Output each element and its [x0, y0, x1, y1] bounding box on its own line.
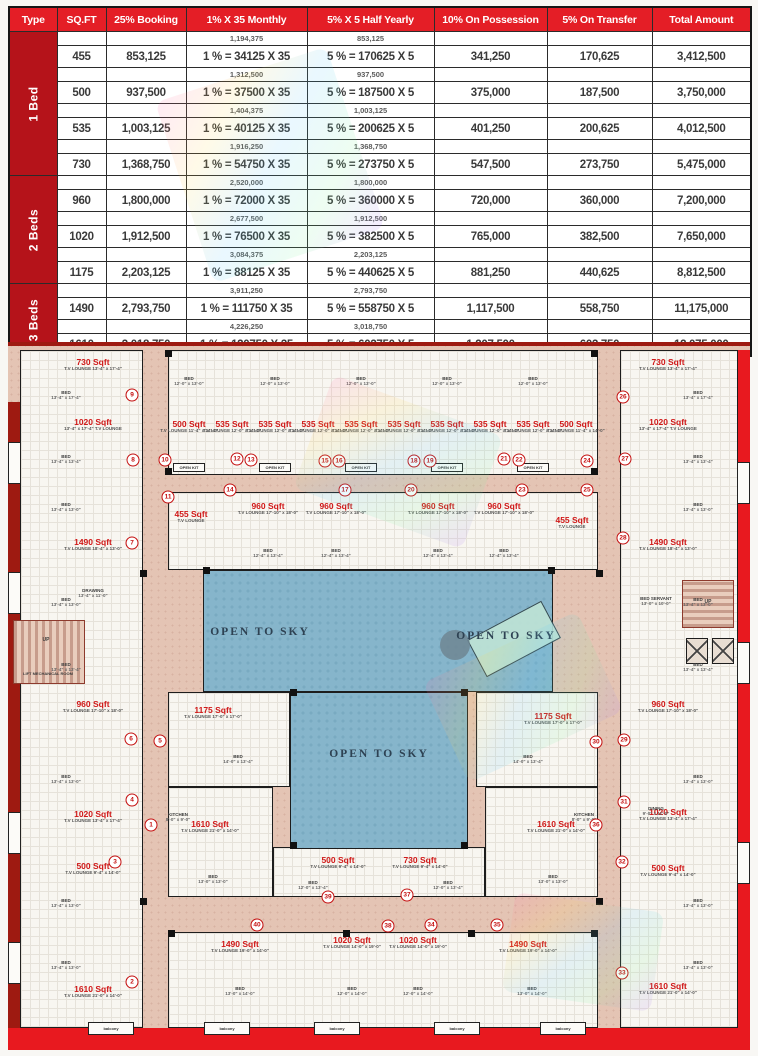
room-label: BED13'-0" x 14'-0" [225, 986, 254, 996]
table-cell: 1,003,125 [106, 118, 186, 140]
table-row: 1,312,500937,500 [9, 68, 751, 82]
unit-lounge-dims: T.V LOUNGE 21'-0" x 14'-0" [64, 994, 122, 999]
unit-number-badge: 30 [590, 736, 603, 749]
open-to-sky-label: OPEN TO SKY [210, 626, 310, 638]
table-cell: 1 % = 37500 X 35 [186, 82, 307, 104]
table-cell: 720,000 [434, 190, 547, 212]
room-label: BED12'-0" x 13'-4" [298, 880, 327, 890]
room-label: BED13'-4" x 17'-4" [683, 390, 712, 400]
table-cell: 1175 [57, 262, 106, 284]
unit-number-badge: 7 [126, 537, 139, 550]
room-dims: 12'-0" x 13'-0" [260, 381, 289, 386]
room-dims: 13'-4" x 13'-4" [51, 667, 80, 672]
room-label: BED13'-0" x 13'-0" [538, 874, 567, 884]
unit-number-badge: 9 [126, 389, 139, 402]
table-subcell: 1,312,500 [186, 68, 307, 82]
room-label: BED12'-0" x 14'-0" [337, 986, 366, 996]
table-cell: 170,625 [547, 46, 652, 68]
table-subcell [434, 140, 547, 154]
unit-number-badge: 4 [126, 794, 139, 807]
table-subcell [434, 212, 547, 226]
lift-mechanical-room-label: LIFT MECHANICAL ROOM [16, 672, 80, 677]
table-cell: 360,000 [547, 190, 652, 212]
open-to-sky-courtyard [290, 692, 468, 849]
unit-lounge-dims: T.V LOUNGE 9'-4" x 14'-0" [392, 865, 447, 870]
unit-lounge-dims: T.V LOUNGE 13'-4" x 17'-4" [639, 817, 697, 822]
balcony [8, 942, 21, 984]
unit-area-label: 455 SqftT.V LOUNGE [555, 516, 588, 530]
unit-number-badge: 14 [224, 484, 237, 497]
unit-area-label: 960 SqftT.V LOUNGE 17'-10" x 18'-0" [63, 700, 123, 714]
unit-number-badge: 28 [617, 532, 630, 545]
open-to-sky-label: OPEN TO SKY [329, 748, 429, 760]
up-label: UP [43, 638, 50, 644]
unit-type-label: 2 Beds [26, 206, 40, 253]
table-subcell: 2,793,750 [307, 284, 434, 298]
table-cell: 937,500 [106, 82, 186, 104]
unit-lounge-dims: T.V LOUNGE 9'-4" x 14'-0" [640, 873, 695, 878]
room-label: BED12'-0" x 13'-0" [518, 376, 547, 386]
open-kit-label: OPEN KIT [345, 463, 377, 472]
unit-area-label: 1490 SqftT.V LOUNGE 19'-0" x 14'-0" [211, 940, 269, 954]
column-marker [140, 898, 147, 905]
table-cell: 5,475,000 [652, 154, 751, 176]
table-row: 9601,800,0001 % = 72000 X 355 % = 360000… [9, 190, 751, 212]
room-label: BED13'-4" x 13'-4" [51, 454, 80, 464]
table-subcell [57, 176, 106, 190]
table-subcell [57, 32, 106, 46]
room-dims: 8'-0" x 9'-0" [166, 817, 190, 822]
table-subcell [434, 320, 547, 334]
table-subcell: 1,003,125 [307, 104, 434, 118]
table-subcell [57, 68, 106, 82]
table-row: 1 Bed1,194,375853,125 [9, 32, 751, 46]
unit-number-badge: 13 [245, 454, 258, 467]
unit-lounge-dims: T.V LOUNGE 17'-10" x 18'-0" [63, 709, 123, 714]
unit-lounge-dims: T.V LOUNGE 13'-4" x 17'-4" [639, 367, 697, 372]
column-marker [290, 689, 297, 696]
room-dims: 13'-4" x 13'-0" [51, 965, 80, 970]
unit-number-badge: 16 [333, 455, 346, 468]
unit-lounge-dims: T.V LOUNGE 9'-4" x 14'-0" [65, 871, 120, 876]
unit-area-label: 1175 SqftT.V LOUNGE 17'-0" x 17'-0" [184, 706, 242, 720]
unit-lounge-dims: T.V LOUNGE 21'-0" x 14'-0" [639, 991, 697, 996]
unit-lounge-dims: T.V LOUNGE 21'-0" x 14'-0" [181, 829, 239, 834]
unit-lounge-dims: T.V LOUNGE 18'-4" x 13'-0" [639, 547, 697, 552]
unit-number-badge: 29 [618, 734, 631, 747]
room-dims: 12'-0" x 13'-4" [298, 885, 327, 890]
unit-area-label: 500 SqftT.V LOUNGE 9'-4" x 14'-0" [310, 856, 365, 870]
table-subcell [434, 284, 547, 298]
table-subcell [547, 176, 652, 190]
unit-number-badge: 27 [619, 453, 632, 466]
table-cell: 765,000 [434, 226, 547, 248]
balcony: balcony [204, 1022, 250, 1035]
table-cell: 853,125 [106, 46, 186, 68]
table-subcell [106, 248, 186, 262]
table-row: 1,404,3751,003,125 [9, 104, 751, 118]
unit-number-badge: 39 [322, 891, 335, 904]
table-row: 2 Beds2,520,0001,800,000 [9, 176, 751, 190]
table-cell: 4,012,500 [652, 118, 751, 140]
room-label: BED13'-4" x 13'-0" [683, 597, 712, 607]
unit-lounge-dims: 13'-4" x 17'-4" T.V LOUNGE [639, 427, 697, 432]
room-label: BED13'-4" x 13'-0" [51, 502, 80, 512]
unit-area-label: 960 SqftT.V LOUNGE 17'-10" x 18'-0" [408, 502, 468, 516]
unit-lounge-dims: T.V LOUNGE 17'-10" x 18'-0" [306, 511, 366, 516]
room-label: BED12'-0" x 13'-0" [174, 376, 203, 386]
table-cell: 5 % = 273750 X 5 [307, 154, 434, 176]
open-to-sky-label: OPEN TO SKY [456, 630, 556, 642]
unit-number-badge: 2 [126, 976, 139, 989]
room-label: BED13'-4" x 13'-0" [51, 774, 80, 784]
room-dims: 13'-4" x 17'-4" [683, 395, 712, 400]
unit-area-label: 500 SqftT.V LOUNGE 9'-4" x 14'-0" [640, 864, 695, 878]
table-header-3: 1% X 35 Monthly [186, 7, 307, 32]
table-cell: 375,000 [434, 82, 547, 104]
unit-area-label: 500 SqftT.V LOUNGE 11'-4" x 14'-0" [547, 420, 604, 434]
table-subcell: 3,911,250 [186, 284, 307, 298]
table-cell: 1490 [57, 298, 106, 320]
unit-lounge-dims: T.V LOUNGE 17'-0" x 17'-0" [184, 715, 242, 720]
unit-number-badge: 35 [491, 919, 504, 932]
table-subcell [652, 68, 751, 82]
room-dims: 13'-4" x 13'-0" [683, 602, 712, 607]
table-subcell: 3,084,375 [186, 248, 307, 262]
table-cell: 187,500 [547, 82, 652, 104]
column-marker [591, 350, 598, 357]
table-cell: 5 % = 382500 X 5 [307, 226, 434, 248]
unit-area-label: 730 SqftT.V LOUNGE 9'-4" x 14'-0" [392, 856, 447, 870]
table-cell: 1 % = 54750 X 35 [186, 154, 307, 176]
unit-lounge-dims: T.V LOUNGE 13'-4" x 17'-4" [64, 367, 122, 372]
table-cell: 3,412,500 [652, 46, 751, 68]
unit-lounge-dims: T.V LOUNGE 19'-0" x 14'-0" [499, 949, 557, 954]
unit-number-badge: 22 [513, 454, 526, 467]
unit-area-label: 1490 SqftT.V LOUNGE 18'-4" x 13'-0" [639, 538, 697, 552]
floor-plan: UPLIFT MECHANICAL ROOMUP730 SqftT.V LOUN… [8, 342, 750, 1050]
room-label: BED13'-4" x 17'-4" [51, 390, 80, 400]
room-dims: 13'-0" x 13'-0" [198, 879, 227, 884]
plan-right-band [738, 350, 750, 1050]
balcony [8, 812, 21, 854]
column-marker [591, 930, 598, 937]
table-subcell [652, 284, 751, 298]
table-cell: 881,250 [434, 262, 547, 284]
table-subcell: 2,677,500 [186, 212, 307, 226]
unit-area-label: 1020 Sqft13'-4" x 17'-4" T.V LOUNGE [64, 418, 122, 432]
table-header-0: Type [9, 7, 57, 32]
column-marker [343, 930, 350, 937]
room-dims: 12'-4" x 13'-4" [489, 553, 518, 558]
column-marker [168, 930, 175, 937]
room-dims: 9'-0" x 11'-0" [643, 811, 670, 816]
table-cell: 1020 [57, 226, 106, 248]
table-cell: 730 [57, 154, 106, 176]
unit-number-badge: 26 [617, 391, 630, 404]
column-marker [165, 468, 172, 475]
table-subcell [106, 212, 186, 226]
column-marker [165, 350, 172, 357]
room-dims: 13'-4" x 13'-4" [683, 459, 712, 464]
lift-icon [712, 638, 734, 664]
room-label: DINING9'-0" x 11'-0" [643, 806, 670, 816]
open-kit-label: OPEN KIT [259, 463, 291, 472]
unit-type-label: 3 Beds [26, 296, 40, 343]
table-subcell [652, 248, 751, 262]
table-cell: 5 % = 187500 X 5 [307, 82, 434, 104]
room-label: BED12'-4" x 13'-4" [423, 548, 452, 558]
plan-left-band [8, 402, 20, 1028]
unit-lounge-dims: T.V LOUNGE 11'-4" x 14'-0" [547, 429, 604, 434]
table-row: 2,677,5001,912,500 [9, 212, 751, 226]
table-cell: 5 % = 440625 X 5 [307, 262, 434, 284]
table-subcell [547, 284, 652, 298]
table-header-6: 5% On Transfer [547, 7, 652, 32]
room-label: BED13'-4" x 13'-0" [683, 502, 712, 512]
room-dims: 13'-4" x 13'-0" [51, 602, 80, 607]
table-cell: 5 % = 360000 X 5 [307, 190, 434, 212]
unit-number-badge: 18 [408, 455, 421, 468]
column-marker [461, 842, 468, 849]
lift-icon [686, 638, 708, 664]
unit-area-label: 960 SqftT.V LOUNGE 17'-10" x 18'-0" [306, 502, 366, 516]
balcony: balcony [540, 1022, 586, 1035]
table-row: 11752,203,1251 % = 88125 X 355 % = 44062… [9, 262, 751, 284]
unit-number-badge: 40 [251, 919, 264, 932]
unit-number-badge: 21 [498, 453, 511, 466]
table-cell: 382,500 [547, 226, 652, 248]
unit-lounge-dims: T.V LOUNGE 18'-4" x 13'-0" [64, 547, 122, 552]
table-header-1: SQ.FT [57, 7, 106, 32]
table-cell: 7,650,000 [652, 226, 751, 248]
unit-lounge-dims: T.V LOUNGE [174, 519, 207, 524]
unit-number-badge: 6 [125, 733, 138, 746]
table-header-7: Total Amount [652, 7, 751, 32]
unit-number-badge: 20 [405, 484, 418, 497]
room-dims: 12'-4" x 13'-4" [253, 553, 282, 558]
table-cell: 1 % = 111750 X 35 [186, 298, 307, 320]
table-row: 10201,912,5001 % = 76500 X 355 % = 38250… [9, 226, 751, 248]
room-label: BED13'-4" x 13'-0" [51, 898, 80, 908]
column-marker [290, 842, 297, 849]
unit-area-label: 960 SqftT.V LOUNGE 17'-10" x 18'-0" [474, 502, 534, 516]
unit-block [620, 350, 738, 1028]
room-label: BED12'-0" x 13'-0" [432, 376, 461, 386]
room-dims: 13'-0" x 14'-0" [517, 991, 546, 996]
table-cell: 547,500 [434, 154, 547, 176]
room-dims: 13'-4" x 17'-4" [51, 395, 80, 400]
room-label: BED13'-4" x 13'-0" [683, 960, 712, 970]
unit-number-badge: 25 [581, 484, 594, 497]
room-label: BED13'-4" x 13'-0" [683, 774, 712, 784]
room-label: BED SERVANT13'-0" x 10'-0" [640, 596, 672, 606]
unit-number-badge: 34 [425, 919, 438, 932]
unit-area-label: 1020 Sqft13'-4" x 17'-4" T.V LOUNGE [639, 418, 697, 432]
column-marker [591, 468, 598, 475]
table-subcell [106, 284, 186, 298]
room-dims: 13'-4" x 13'-0" [683, 903, 712, 908]
room-dims: 12'-0" x 13'-4" [433, 885, 462, 890]
table-row: 455853,1251 % = 34125 X 355 % = 170625 X… [9, 46, 751, 68]
table-subcell [106, 140, 186, 154]
table-cell: 440,625 [547, 262, 652, 284]
open-kit-label: OPEN KIT [173, 463, 205, 472]
room-dims: 12'-0" x 13'-0" [174, 381, 203, 386]
unit-area-label: 1610 SqftT.V LOUNGE 21'-0" x 14'-0" [639, 982, 697, 996]
table-cell: 500 [57, 82, 106, 104]
table-cell: 341,250 [434, 46, 547, 68]
room-dims: 13'-4" x 13'-4" [683, 667, 712, 672]
unit-number-badge: 5 [154, 735, 167, 748]
table-subcell [547, 140, 652, 154]
table-cell: 535 [57, 118, 106, 140]
room-label: KITCHEN8'-0" x 9'-0" [166, 812, 190, 822]
unit-lounge-dims: T.V LOUNGE 17'-0" x 17'-0" [524, 721, 582, 726]
unit-number-badge: 3 [109, 856, 122, 869]
room-dims: 12'-0" x 13'-0" [346, 381, 375, 386]
room-label: BED13'-4" x 13'-0" [51, 960, 80, 970]
table-subcell [652, 212, 751, 226]
unit-number-badge: 12 [231, 453, 244, 466]
room-label: BED14'-0" x 13'-4" [513, 754, 542, 764]
table-cell: 1,117,500 [434, 298, 547, 320]
table-header-4: 5% X 5 Half Yearly [307, 7, 434, 32]
table-cell: 960 [57, 190, 106, 212]
table-cell: 1,912,500 [106, 226, 186, 248]
unit-lounge-dims: T.V LOUNGE 14'-0" x 19'-0" [389, 945, 447, 950]
table-cell: 2,203,125 [106, 262, 186, 284]
room-dims: 12'-4" x 13'-4" [321, 553, 350, 558]
unit-type-label: 1 Bed [26, 80, 40, 127]
room-dims: 13'-4" x 13'-0" [683, 507, 712, 512]
room-dims: 12'-0" x 14'-0" [337, 991, 366, 996]
table-cell: 1,800,000 [106, 190, 186, 212]
table-subcell: 2,203,125 [307, 248, 434, 262]
table-subcell: 3,018,750 [307, 320, 434, 334]
table-subcell [57, 284, 106, 298]
unit-number-badge: 24 [581, 455, 594, 468]
table-cell: 558,750 [547, 298, 652, 320]
unit-number-badge: 15 [319, 455, 332, 468]
balcony [737, 642, 750, 684]
table-subcell [547, 32, 652, 46]
balcony [737, 842, 750, 884]
table-cell: 401,250 [434, 118, 547, 140]
table-subcell [106, 68, 186, 82]
table-cell: 11,175,000 [652, 298, 751, 320]
table-subcell [547, 320, 652, 334]
unit-area-label: 960 SqftT.V LOUNGE 17'-10" x 18'-0" [238, 502, 298, 516]
table-subcell [434, 176, 547, 190]
table-row: 4,226,2503,018,750 [9, 320, 751, 334]
table-cell: 8,812,500 [652, 262, 751, 284]
room-label: BED14'-0" x 13'-4" [223, 754, 252, 764]
table-subcell [57, 212, 106, 226]
room-dims: 13'-0" x 14'-0" [225, 991, 254, 996]
unit-lounge-dims: 13'-4" x 17'-4" T.V LOUNGE [64, 427, 122, 432]
table-cell: 5 % = 170625 X 5 [307, 46, 434, 68]
room-dims: 14'-0" x 13'-4" [223, 759, 252, 764]
balcony: balcony [314, 1022, 360, 1035]
unit-number-badge: 32 [616, 856, 629, 869]
column-marker [596, 570, 603, 577]
table-subcell: 1,912,500 [307, 212, 434, 226]
room-dims: 12'-0" x 13'-0" [432, 381, 461, 386]
unit-number-badge: 38 [382, 920, 395, 933]
table-row: 7301,368,7501 % = 54750 X 355 % = 273750… [9, 154, 751, 176]
table-cell: 1 % = 34125 X 35 [186, 46, 307, 68]
table-subcell: 853,125 [307, 32, 434, 46]
room-label: BED12'-4" x 13'-4" [489, 548, 518, 558]
table-row: 5351,003,1251 % = 40125 X 355 % = 200625… [9, 118, 751, 140]
unit-area-label: 1490 SqftT.V LOUNGE 19'-0" x 14'-0" [499, 940, 557, 954]
table-cell: 7,200,000 [652, 190, 751, 212]
table-subcell [106, 104, 186, 118]
room-label: BED12'-0" x 13'-4" [433, 880, 462, 890]
unit-number-badge: 1 [145, 819, 158, 832]
table-subcell: 1,368,750 [307, 140, 434, 154]
balcony [737, 462, 750, 504]
room-label: DRAWING13'-4" x 11'-0" [78, 588, 107, 598]
table-subcell [547, 212, 652, 226]
room-label: BED13'-4" x 13'-4" [51, 662, 80, 672]
room-dims: 13'-4" x 13'-0" [51, 779, 80, 784]
unit-number-badge: 33 [616, 967, 629, 980]
table-subcell [57, 104, 106, 118]
table-subcell [652, 104, 751, 118]
table-subcell: 1,800,000 [307, 176, 434, 190]
room-label: BED12'-0" x 14'-0" [403, 986, 432, 996]
unit-lounge-dims: T.V LOUNGE 17'-10" x 18'-0" [638, 709, 698, 714]
table-cell: 455 [57, 46, 106, 68]
room-dims: 12'-4" x 13'-4" [423, 553, 452, 558]
unit-block [20, 350, 143, 1028]
unit-area-label: 1490 SqftT.V LOUNGE 18'-4" x 13'-0" [64, 538, 122, 552]
unit-area-label: 1610 SqftT.V LOUNGE 21'-0" x 14'-0" [64, 985, 122, 999]
table-header-2: 25% Booking [106, 7, 186, 32]
table-subcell [652, 32, 751, 46]
table-cell: 1,368,750 [106, 154, 186, 176]
brochure-page: TypeSQ.FT25% Booking1% X 35 Monthly5% X … [0, 0, 758, 1056]
room-label: BED13'-4" x 13'-0" [51, 597, 80, 607]
table-subcell [106, 176, 186, 190]
room-dims: 13'-4" x 13'-4" [51, 459, 80, 464]
table-cell: 3,750,000 [652, 82, 751, 104]
table-subcell: 1,194,375 [186, 32, 307, 46]
room-label: BED13'-4" x 13'-4" [683, 662, 712, 672]
table-subcell [652, 140, 751, 154]
table-row: 1,916,2501,368,750 [9, 140, 751, 154]
room-dims: 13'-0" x 13'-0" [538, 879, 567, 884]
payment-plan-table: TypeSQ.FT25% Booking1% X 35 Monthly5% X … [8, 6, 752, 357]
table-subcell [57, 320, 106, 334]
table-cell: 5 % = 200625 X 5 [307, 118, 434, 140]
unit-number-badge: 10 [159, 454, 172, 467]
room-label: BED12'-0" x 13'-0" [346, 376, 375, 386]
room-label: BED13'-0" x 14'-0" [517, 986, 546, 996]
table-subcell [434, 68, 547, 82]
room-dims: 13'-4" x 13'-0" [683, 779, 712, 784]
room-label: BED13'-4" x 13'-4" [683, 454, 712, 464]
unit-area-label: 730 SqftT.V LOUNGE 13'-4" x 17'-4" [64, 358, 122, 372]
balcony [8, 442, 21, 484]
unit-number-badge: 19 [424, 455, 437, 468]
room-dims: 13'-4" x 13'-0" [51, 903, 80, 908]
unit-area-label: 455 SqftT.V LOUNGE [174, 510, 207, 524]
table-cell: 1 % = 40125 X 35 [186, 118, 307, 140]
unit-number-badge: 17 [339, 484, 352, 497]
